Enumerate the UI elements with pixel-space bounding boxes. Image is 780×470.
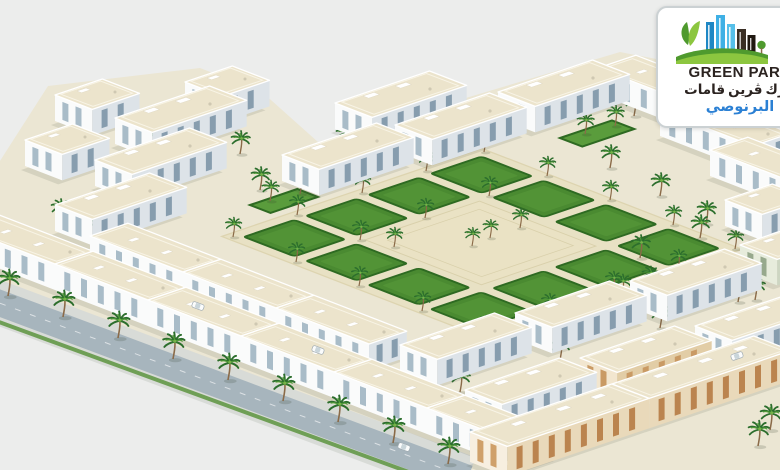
logo-arabic-word: قامات	[684, 81, 725, 98]
logo-district: البرنوصي	[658, 98, 780, 117]
logo-card: GREEN PARK قاماتڤرينبارك البرنوصي	[656, 6, 780, 128]
logo-graphic	[676, 14, 768, 64]
logo-arabic-word: ڤرين	[728, 81, 762, 98]
logo-arabic-word: بارك	[766, 81, 780, 98]
logo-title: GREEN PARK	[658, 64, 780, 81]
leaf-icon	[681, 22, 689, 45]
logo-arabic: قاماتڤرينبارك	[658, 81, 780, 98]
leaf-icon	[689, 21, 700, 46]
tree-icon	[757, 41, 765, 49]
